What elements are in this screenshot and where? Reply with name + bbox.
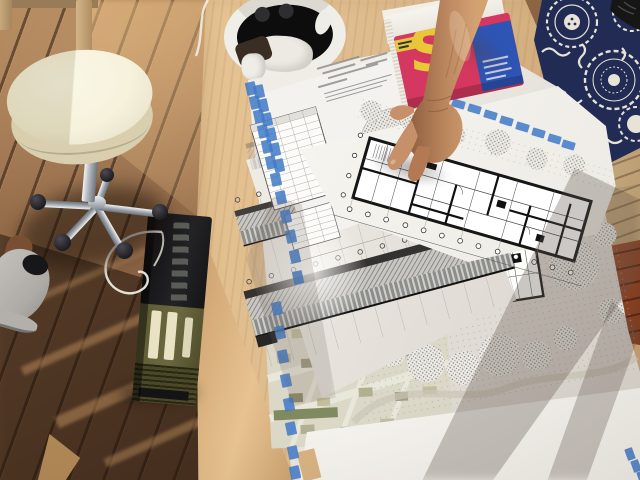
- photo-scene: S: [0, 0, 640, 480]
- vignette: [0, 0, 640, 480]
